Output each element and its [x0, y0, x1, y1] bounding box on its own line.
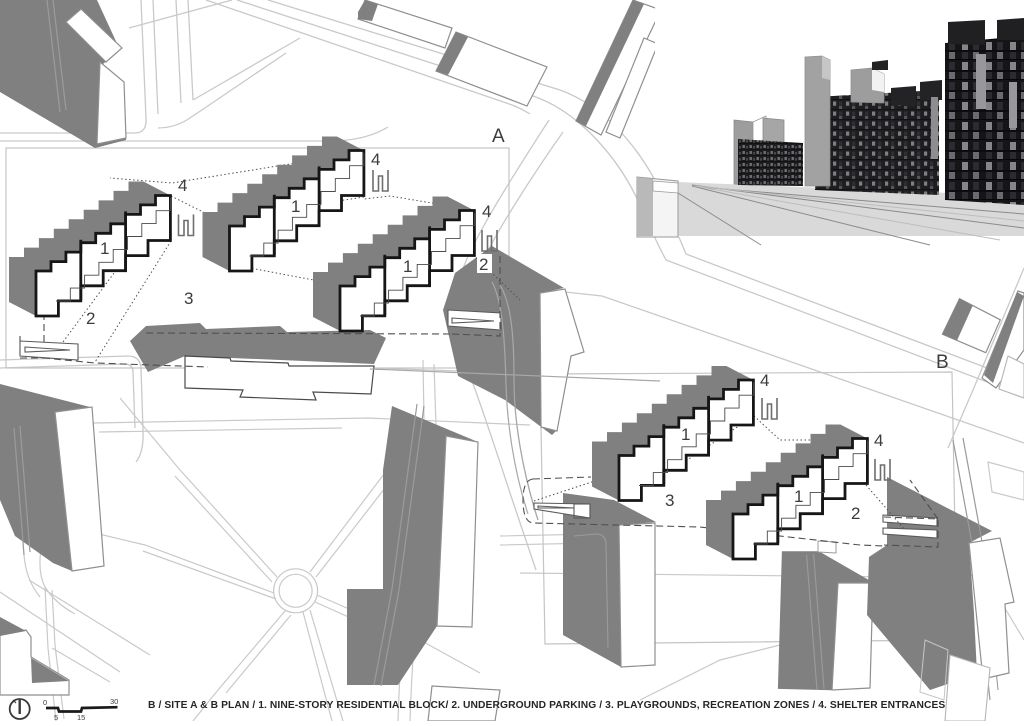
svg-text:5: 5	[54, 713, 58, 721]
svg-text:4: 4	[178, 176, 187, 195]
svg-text:1: 1	[291, 197, 300, 216]
svg-text:4: 4	[482, 202, 491, 221]
svg-text:3: 3	[665, 491, 674, 510]
svg-text:2: 2	[86, 309, 95, 328]
svg-text:2: 2	[851, 504, 860, 523]
svg-text:2: 2	[479, 255, 488, 274]
svg-text:4: 4	[760, 371, 769, 390]
svg-text:4: 4	[371, 150, 380, 169]
svg-text:1: 1	[794, 487, 803, 506]
svg-text:1: 1	[100, 239, 109, 258]
svg-text:B: B	[936, 352, 949, 373]
svg-text:30: 30	[110, 697, 118, 706]
svg-text:3: 3	[184, 289, 193, 308]
svg-text:0: 0	[43, 698, 47, 707]
svg-text:15: 15	[77, 713, 85, 721]
svg-text:1: 1	[403, 257, 412, 276]
svg-text:4: 4	[874, 431, 883, 450]
svg-text:B / SITE A & B PLAN / 1. NINE-: B / SITE A & B PLAN / 1. NINE-STORY RESI…	[148, 700, 945, 711]
svg-text:A: A	[492, 126, 505, 147]
svg-text:1: 1	[681, 425, 690, 444]
